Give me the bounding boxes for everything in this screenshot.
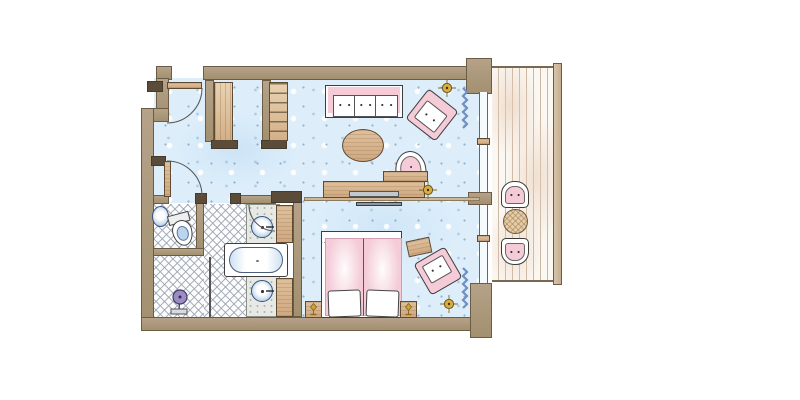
desk-console <box>323 181 425 198</box>
closet-bracket-b <box>261 140 287 149</box>
balcony-chair-cushion <box>505 243 525 261</box>
balcony-chair-bottom <box>501 238 529 265</box>
toilet-bowl <box>170 218 196 248</box>
shower-tiles <box>154 256 209 317</box>
bath-wall-cap <box>230 193 241 204</box>
armchair-seat <box>414 100 448 133</box>
sofa-cushion <box>375 95 398 117</box>
vanity-cabinet-bottom <box>276 278 293 317</box>
wall-pier-bottom-right <box>470 283 492 338</box>
floor-plan <box>0 0 800 400</box>
nightstand-right <box>400 301 417 318</box>
sofa-cushion <box>333 95 356 117</box>
window-glass-lower <box>479 205 488 283</box>
closet-bracket-a <box>211 140 238 149</box>
bathtub-basin <box>229 247 283 273</box>
washbasin-bottom <box>251 280 273 302</box>
washbasin-top <box>251 216 273 238</box>
wall-bottom <box>141 317 475 331</box>
window-frame-block-upper <box>477 138 490 145</box>
wall-pier-top-right <box>466 58 492 94</box>
balcony-rail <box>553 63 562 285</box>
entry-door-jamb <box>147 81 163 92</box>
bathroom-wall-right <box>293 195 302 317</box>
coffee-table-oval <box>342 129 384 162</box>
double-bed <box>321 231 402 318</box>
bathtub <box>224 243 288 277</box>
entry-door-leaf <box>167 82 202 89</box>
balcony-chair-cushion <box>505 186 525 204</box>
pillow-left <box>328 289 362 317</box>
sofa-back <box>328 87 400 95</box>
closet-pier-a <box>205 80 214 142</box>
table-lamp-icon <box>306 302 321 317</box>
bath-header-cap <box>271 191 302 203</box>
armchair-seat <box>422 255 453 284</box>
sofa-cushion <box>354 95 377 117</box>
bath-door-jamb <box>195 193 207 204</box>
balcony-round-table <box>503 209 528 234</box>
table-lamp-icon <box>401 302 416 317</box>
nightstand-left <box>305 301 322 318</box>
desk-drawer-handle <box>349 191 399 197</box>
foot-bench <box>356 202 402 206</box>
wall-top <box>203 66 492 80</box>
wardrobe-closet <box>214 82 233 141</box>
window-frame-block-lower <box>477 235 490 242</box>
pillow-right <box>366 289 400 317</box>
shower-partition <box>209 257 211 317</box>
balcony-chair-top <box>501 181 529 208</box>
shelf-closet <box>269 82 288 141</box>
vanity-cabinet-top <box>276 205 293 243</box>
sofa <box>325 85 403 118</box>
bathroom-door-leaf <box>164 161 171 197</box>
